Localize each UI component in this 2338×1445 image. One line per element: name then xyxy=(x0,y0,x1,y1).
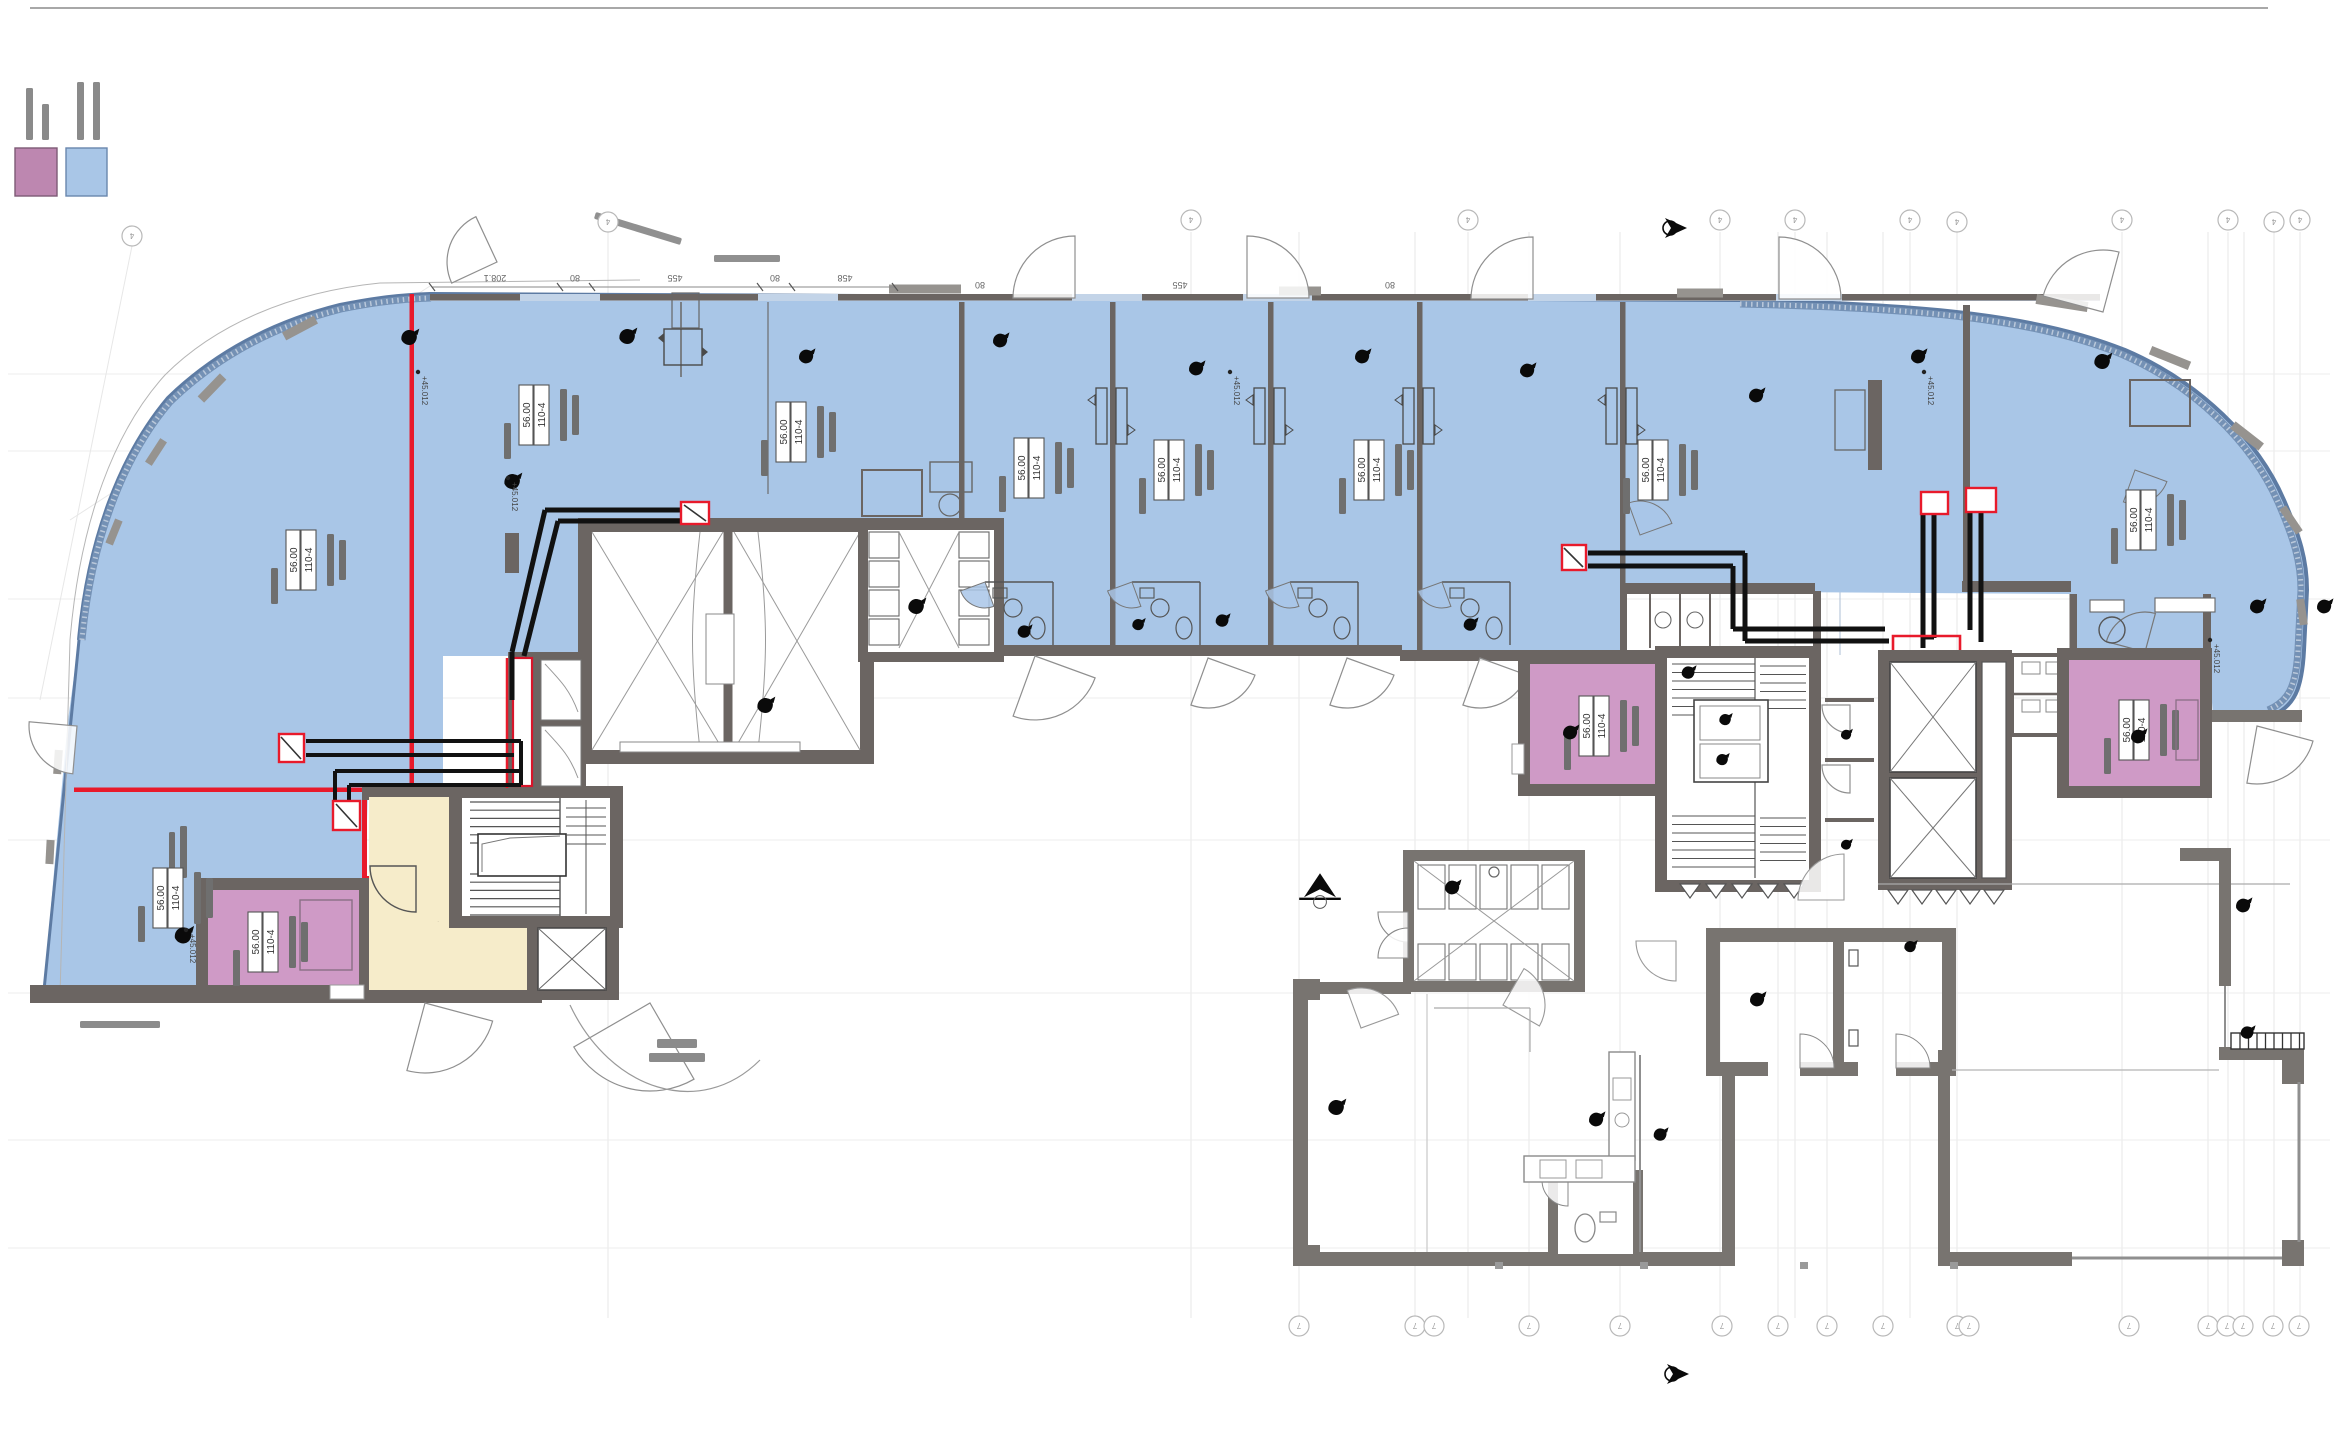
svg-text:56.00: 56.00 xyxy=(1157,457,1168,482)
svg-text:458: 458 xyxy=(837,273,852,283)
svg-text:56.00: 56.00 xyxy=(1582,713,1593,738)
svg-text:7: 7 xyxy=(1775,1321,1780,1330)
svg-text:110-4: 110-4 xyxy=(1032,455,1043,480)
svg-text:110-4: 110-4 xyxy=(1656,457,1667,482)
svg-text:7: 7 xyxy=(1431,1321,1436,1330)
svg-text:110-4: 110-4 xyxy=(304,547,315,572)
svg-text:56.00: 56.00 xyxy=(1017,455,1028,480)
svg-text:+45.012: +45.012 xyxy=(1232,376,1241,406)
svg-text:7: 7 xyxy=(1412,1321,1417,1330)
svg-text:7: 7 xyxy=(1824,1321,1829,1330)
svg-text:80: 80 xyxy=(975,280,985,290)
svg-text:80: 80 xyxy=(570,273,580,283)
svg-text:80: 80 xyxy=(770,273,780,283)
svg-text:455: 455 xyxy=(1172,280,1187,290)
svg-text:455: 455 xyxy=(667,273,682,283)
svg-text:7: 7 xyxy=(2240,1321,2245,1330)
svg-text:110-4: 110-4 xyxy=(1172,457,1183,482)
svg-text:4: 4 xyxy=(129,231,134,240)
svg-text:110-4: 110-4 xyxy=(537,402,548,427)
svg-text:56.00: 56.00 xyxy=(1641,457,1652,482)
svg-text:7: 7 xyxy=(1296,1321,1301,1330)
svg-text:7: 7 xyxy=(2296,1321,2301,1330)
svg-text:4: 4 xyxy=(1907,215,1912,224)
svg-text:110-4: 110-4 xyxy=(171,885,182,910)
svg-text:4: 4 xyxy=(1465,215,1470,224)
svg-text:56.00: 56.00 xyxy=(522,402,533,427)
svg-text:56.00: 56.00 xyxy=(156,885,167,910)
svg-text:4: 4 xyxy=(1954,217,1959,226)
svg-text:56.00: 56.00 xyxy=(1357,457,1368,482)
svg-text:7: 7 xyxy=(1719,1321,1724,1330)
svg-text:4: 4 xyxy=(2297,215,2302,224)
svg-text:+45.012: +45.012 xyxy=(420,376,429,406)
svg-text:7: 7 xyxy=(2205,1321,2210,1330)
svg-text:+45.012: +45.012 xyxy=(510,482,519,512)
svg-text:56.00: 56.00 xyxy=(289,547,300,572)
svg-text:208.1: 208.1 xyxy=(484,273,507,283)
svg-text:110-4: 110-4 xyxy=(1372,457,1383,482)
svg-text:7: 7 xyxy=(2126,1321,2131,1330)
svg-text:56.00: 56.00 xyxy=(251,929,262,954)
svg-text:4: 4 xyxy=(605,217,610,226)
svg-text:4: 4 xyxy=(2271,217,2276,226)
svg-text:+45.012: +45.012 xyxy=(1926,376,1935,406)
svg-text:4: 4 xyxy=(1717,215,1722,224)
svg-text:110-4: 110-4 xyxy=(1597,713,1608,738)
svg-text:4: 4 xyxy=(1188,215,1193,224)
svg-text:+45.012: +45.012 xyxy=(188,934,197,964)
svg-text:7: 7 xyxy=(1880,1321,1885,1330)
svg-text:7: 7 xyxy=(2270,1321,2275,1330)
svg-text:4: 4 xyxy=(2119,215,2124,224)
svg-text:56.00: 56.00 xyxy=(779,419,790,444)
svg-text:56.00: 56.00 xyxy=(2129,507,2140,532)
svg-text:110-4: 110-4 xyxy=(266,929,277,954)
svg-text:80: 80 xyxy=(1385,280,1395,290)
svg-text:+45.012: +45.012 xyxy=(2212,644,2221,674)
svg-text:7: 7 xyxy=(2224,1321,2229,1330)
svg-text:7: 7 xyxy=(1966,1321,1971,1330)
svg-text:7: 7 xyxy=(1526,1321,1531,1330)
svg-text:4: 4 xyxy=(1792,215,1797,224)
svg-text:110-4: 110-4 xyxy=(2144,507,2155,532)
svg-text:4: 4 xyxy=(2225,215,2230,224)
svg-text:110-4: 110-4 xyxy=(794,419,805,444)
svg-text:7: 7 xyxy=(1617,1321,1622,1330)
